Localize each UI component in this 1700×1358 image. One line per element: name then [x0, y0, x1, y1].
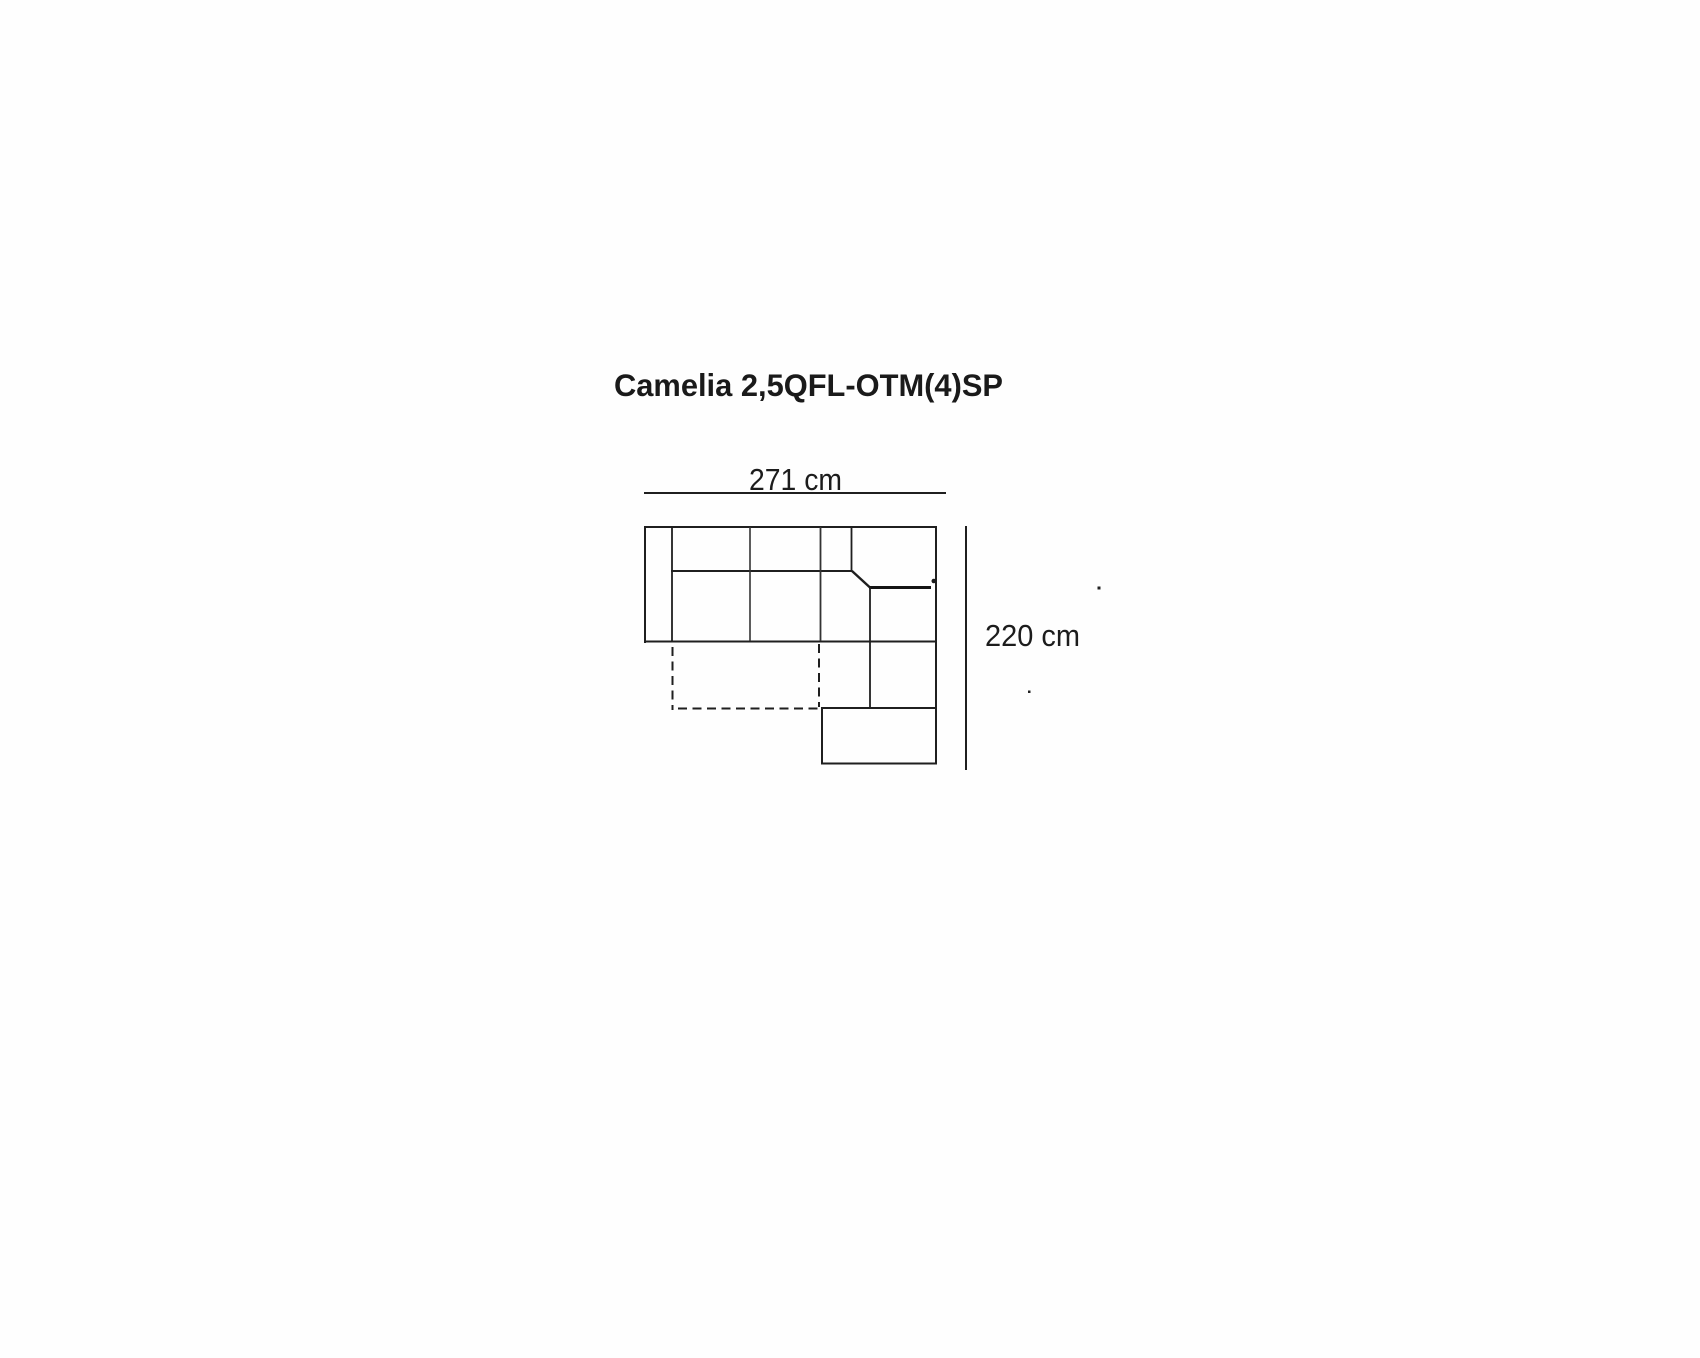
- svg-text:Camelia 2,5QFL-OTM(4)SP: Camelia 2,5QFL-OTM(4)SP: [614, 367, 1003, 403]
- svg-text:220 cm: 220 cm: [985, 619, 1080, 653]
- svg-text:271 cm: 271 cm: [749, 463, 842, 497]
